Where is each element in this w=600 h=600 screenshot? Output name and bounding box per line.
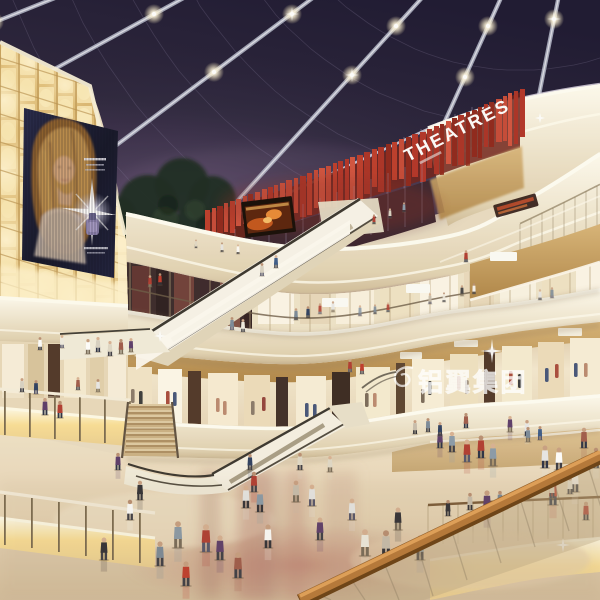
svg-text:铝翼集团: 铝翼集团 [418,368,528,397]
